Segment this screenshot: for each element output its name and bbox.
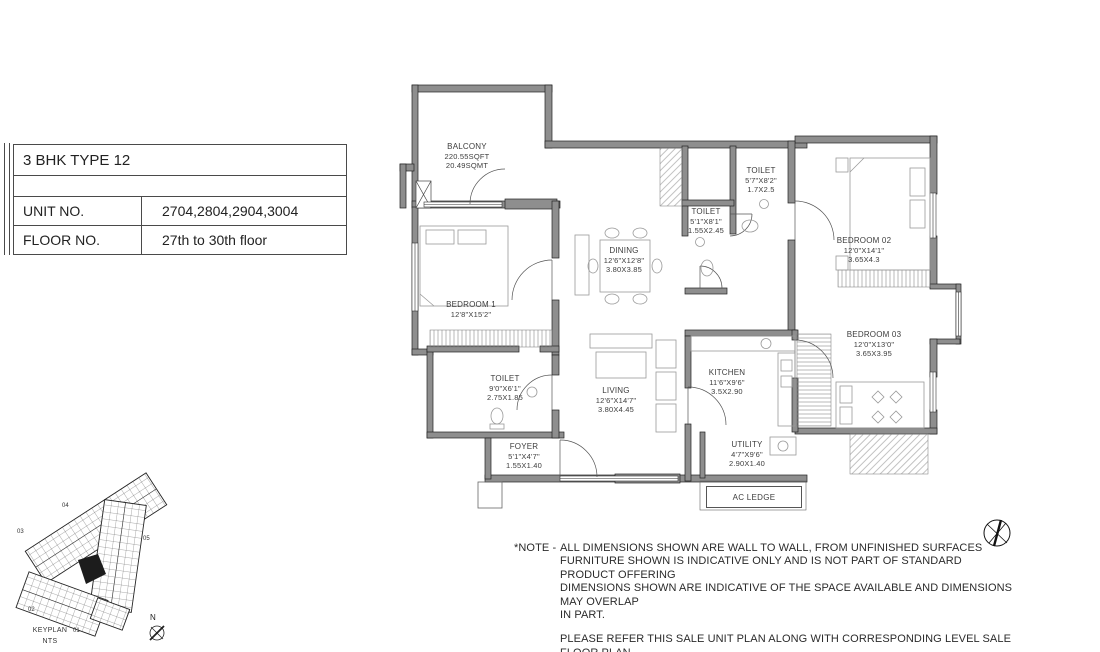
room-name: DINING xyxy=(604,246,644,256)
room-label-kitchen: KITCHEN 11'6"X9'6" 3.5X2.90 xyxy=(709,368,746,397)
floor-no-value: 27th to 30th floor xyxy=(141,226,346,254)
note-line: ALL DIMENSIONS SHOWN ARE WALL TO WALL, F… xyxy=(560,542,1019,555)
room-dim-ft: 11'6"X9'6" xyxy=(709,378,746,388)
keyplan-tower-01: 01 xyxy=(73,628,80,634)
room-name: FOYER xyxy=(506,442,542,452)
note-paragraph-1: ALL DIMENSIONS SHOWN ARE WALL TO WALL, F… xyxy=(560,542,1019,622)
table-row-floor-no: FLOOR NO. 27th to 30th floor xyxy=(14,225,346,254)
sheet-edge-line-inner xyxy=(9,143,10,255)
ac-ledge-label: AC LEDGE xyxy=(706,486,802,508)
room-label-toilet-mid: TOILET 5'1"X8'1" 1.55X2.45 xyxy=(688,207,724,236)
room-name: BEDROOM 1 xyxy=(446,300,496,310)
room-dim-m: 3.65X3.95 xyxy=(847,349,901,359)
room-name: TOILET xyxy=(487,374,523,384)
note-line: FURNITURE SHOWN IS INDICATIVE ONLY AND I… xyxy=(560,555,1019,582)
room-dim-ft: 12'6"X12'8" xyxy=(604,256,644,266)
note-label: *NOTE - xyxy=(514,542,560,622)
unit-info-table: 3 BHK TYPE 12 UNIT NO. 2704,2804,2904,30… xyxy=(13,144,347,255)
table-blank-row xyxy=(14,175,346,196)
room-name: BEDROOM 03 xyxy=(847,330,901,340)
room-dim-ft: 12'0"X14'1" xyxy=(837,246,891,256)
floor-no-label: FLOOR NO. xyxy=(14,232,141,248)
keyplan-north-icon xyxy=(150,626,164,640)
doors xyxy=(470,169,834,477)
room-dim-m: 20.49SQMT xyxy=(445,161,490,171)
room-dim-ft: 5'7"X8'2" xyxy=(745,176,777,186)
keyplan-tower-04: 04 xyxy=(62,503,69,509)
keyplan-title: KEYPLAN xyxy=(33,627,67,634)
unit-type-title: 3 BHK TYPE 12 xyxy=(14,145,346,175)
wardrobe-hatch xyxy=(430,148,930,474)
room-dim-m: 1.55X2.45 xyxy=(688,226,724,236)
sheet-edge-line-outer xyxy=(4,143,5,255)
keyplan-tower-03: 03 xyxy=(17,529,24,535)
room-dim-ft: 9'0"X6'1" xyxy=(487,384,523,394)
room-label-bedroom-1: BEDROOM 1 12'8"X15'2" xyxy=(446,300,496,319)
room-dim-ft: 5'1"X8'1" xyxy=(688,217,724,227)
room-label-toilet-top: TOILET 5'7"X8'2" 1.7X2.5 xyxy=(745,166,777,195)
room-dim-ft: 220.55SQFT xyxy=(445,152,490,162)
room-name: BEDROOM 02 xyxy=(837,236,891,246)
room-label-balcony: BALCONY 220.55SQFT 20.49SQMT xyxy=(445,142,490,171)
keyplan-drawing xyxy=(16,473,167,636)
room-dim-m: 2.90X1.40 xyxy=(729,459,765,469)
room-name: BALCONY xyxy=(445,142,490,152)
room-dim-m: 2.75X1.85 xyxy=(487,393,523,403)
room-dim-m: 3.80X4.45 xyxy=(596,405,636,415)
room-dim-ft: 12'8"X15'2" xyxy=(446,310,496,320)
room-label-bedroom-03: BEDROOM 03 12'0"X13'0" 3.65X3.95 xyxy=(847,330,901,359)
unit-no-value: 2704,2804,2904,3004 xyxy=(141,197,346,225)
keyplan-scale: NTS xyxy=(43,638,58,645)
room-dim-m: 3.65X4.3 xyxy=(837,255,891,265)
keyplan-tower-05: 05 xyxy=(143,536,150,542)
note-paragraph-2: PLEASE REFER THIS SALE UNIT PLAN ALONG W… xyxy=(560,633,1019,652)
room-label-foyer: FOYER 5'1"X4'7" 1.55X1.40 xyxy=(506,442,542,471)
room-name: LIVING xyxy=(596,386,636,396)
room-dim-m: 1.55X1.40 xyxy=(506,461,542,471)
room-dim-ft: 12'6"X14'7" xyxy=(596,396,636,406)
room-label-toilet-bottom: TOILET 9'0"X6'1" 2.75X1.85 xyxy=(487,374,523,403)
room-label-dining: DINING 12'6"X12'8" 3.80X3.85 xyxy=(604,246,644,275)
room-label-living: LIVING 12'6"X14'7" 3.80X4.45 xyxy=(596,386,636,415)
floor-plan-sheet: { "info_table": { "type_label": "3 BHK T… xyxy=(0,0,1100,652)
room-label-utility: UTILITY 4'7"X9'6" 2.90X1.40 xyxy=(729,440,765,469)
room-dim-m: 3.5X2.90 xyxy=(709,387,746,397)
room-name: TOILET xyxy=(688,207,724,217)
room-name: KITCHEN xyxy=(709,368,746,378)
keyplan-tower-02: 02 xyxy=(28,607,35,613)
room-dim-m: 3.80X3.85 xyxy=(604,265,644,275)
note-line: IN PART. xyxy=(560,609,1019,622)
room-dim-m: 1.7X2.5 xyxy=(745,185,777,195)
room-name: UTILITY xyxy=(729,440,765,450)
unit-no-label: UNIT NO. xyxy=(14,203,141,219)
table-row-unit-no: UNIT NO. 2704,2804,2904,3004 xyxy=(14,196,346,225)
room-dim-ft: 4'7"X9'6" xyxy=(729,450,765,460)
room-dim-ft: 5'1"X4'7" xyxy=(506,452,542,462)
keyplan-north-label: N xyxy=(150,613,156,622)
room-label-bedroom-02: BEDROOM 02 12'0"X14'1" 3.65X4.3 xyxy=(837,236,891,265)
room-dim-ft: 12'0"X13'0" xyxy=(847,340,901,350)
notes-block: *NOTE - ALL DIMENSIONS SHOWN ARE WALL TO… xyxy=(514,542,1019,652)
note-line: DIMENSIONS SHOWN ARE INDICATIVE OF THE S… xyxy=(560,582,1019,609)
room-name: TOILET xyxy=(745,166,777,176)
